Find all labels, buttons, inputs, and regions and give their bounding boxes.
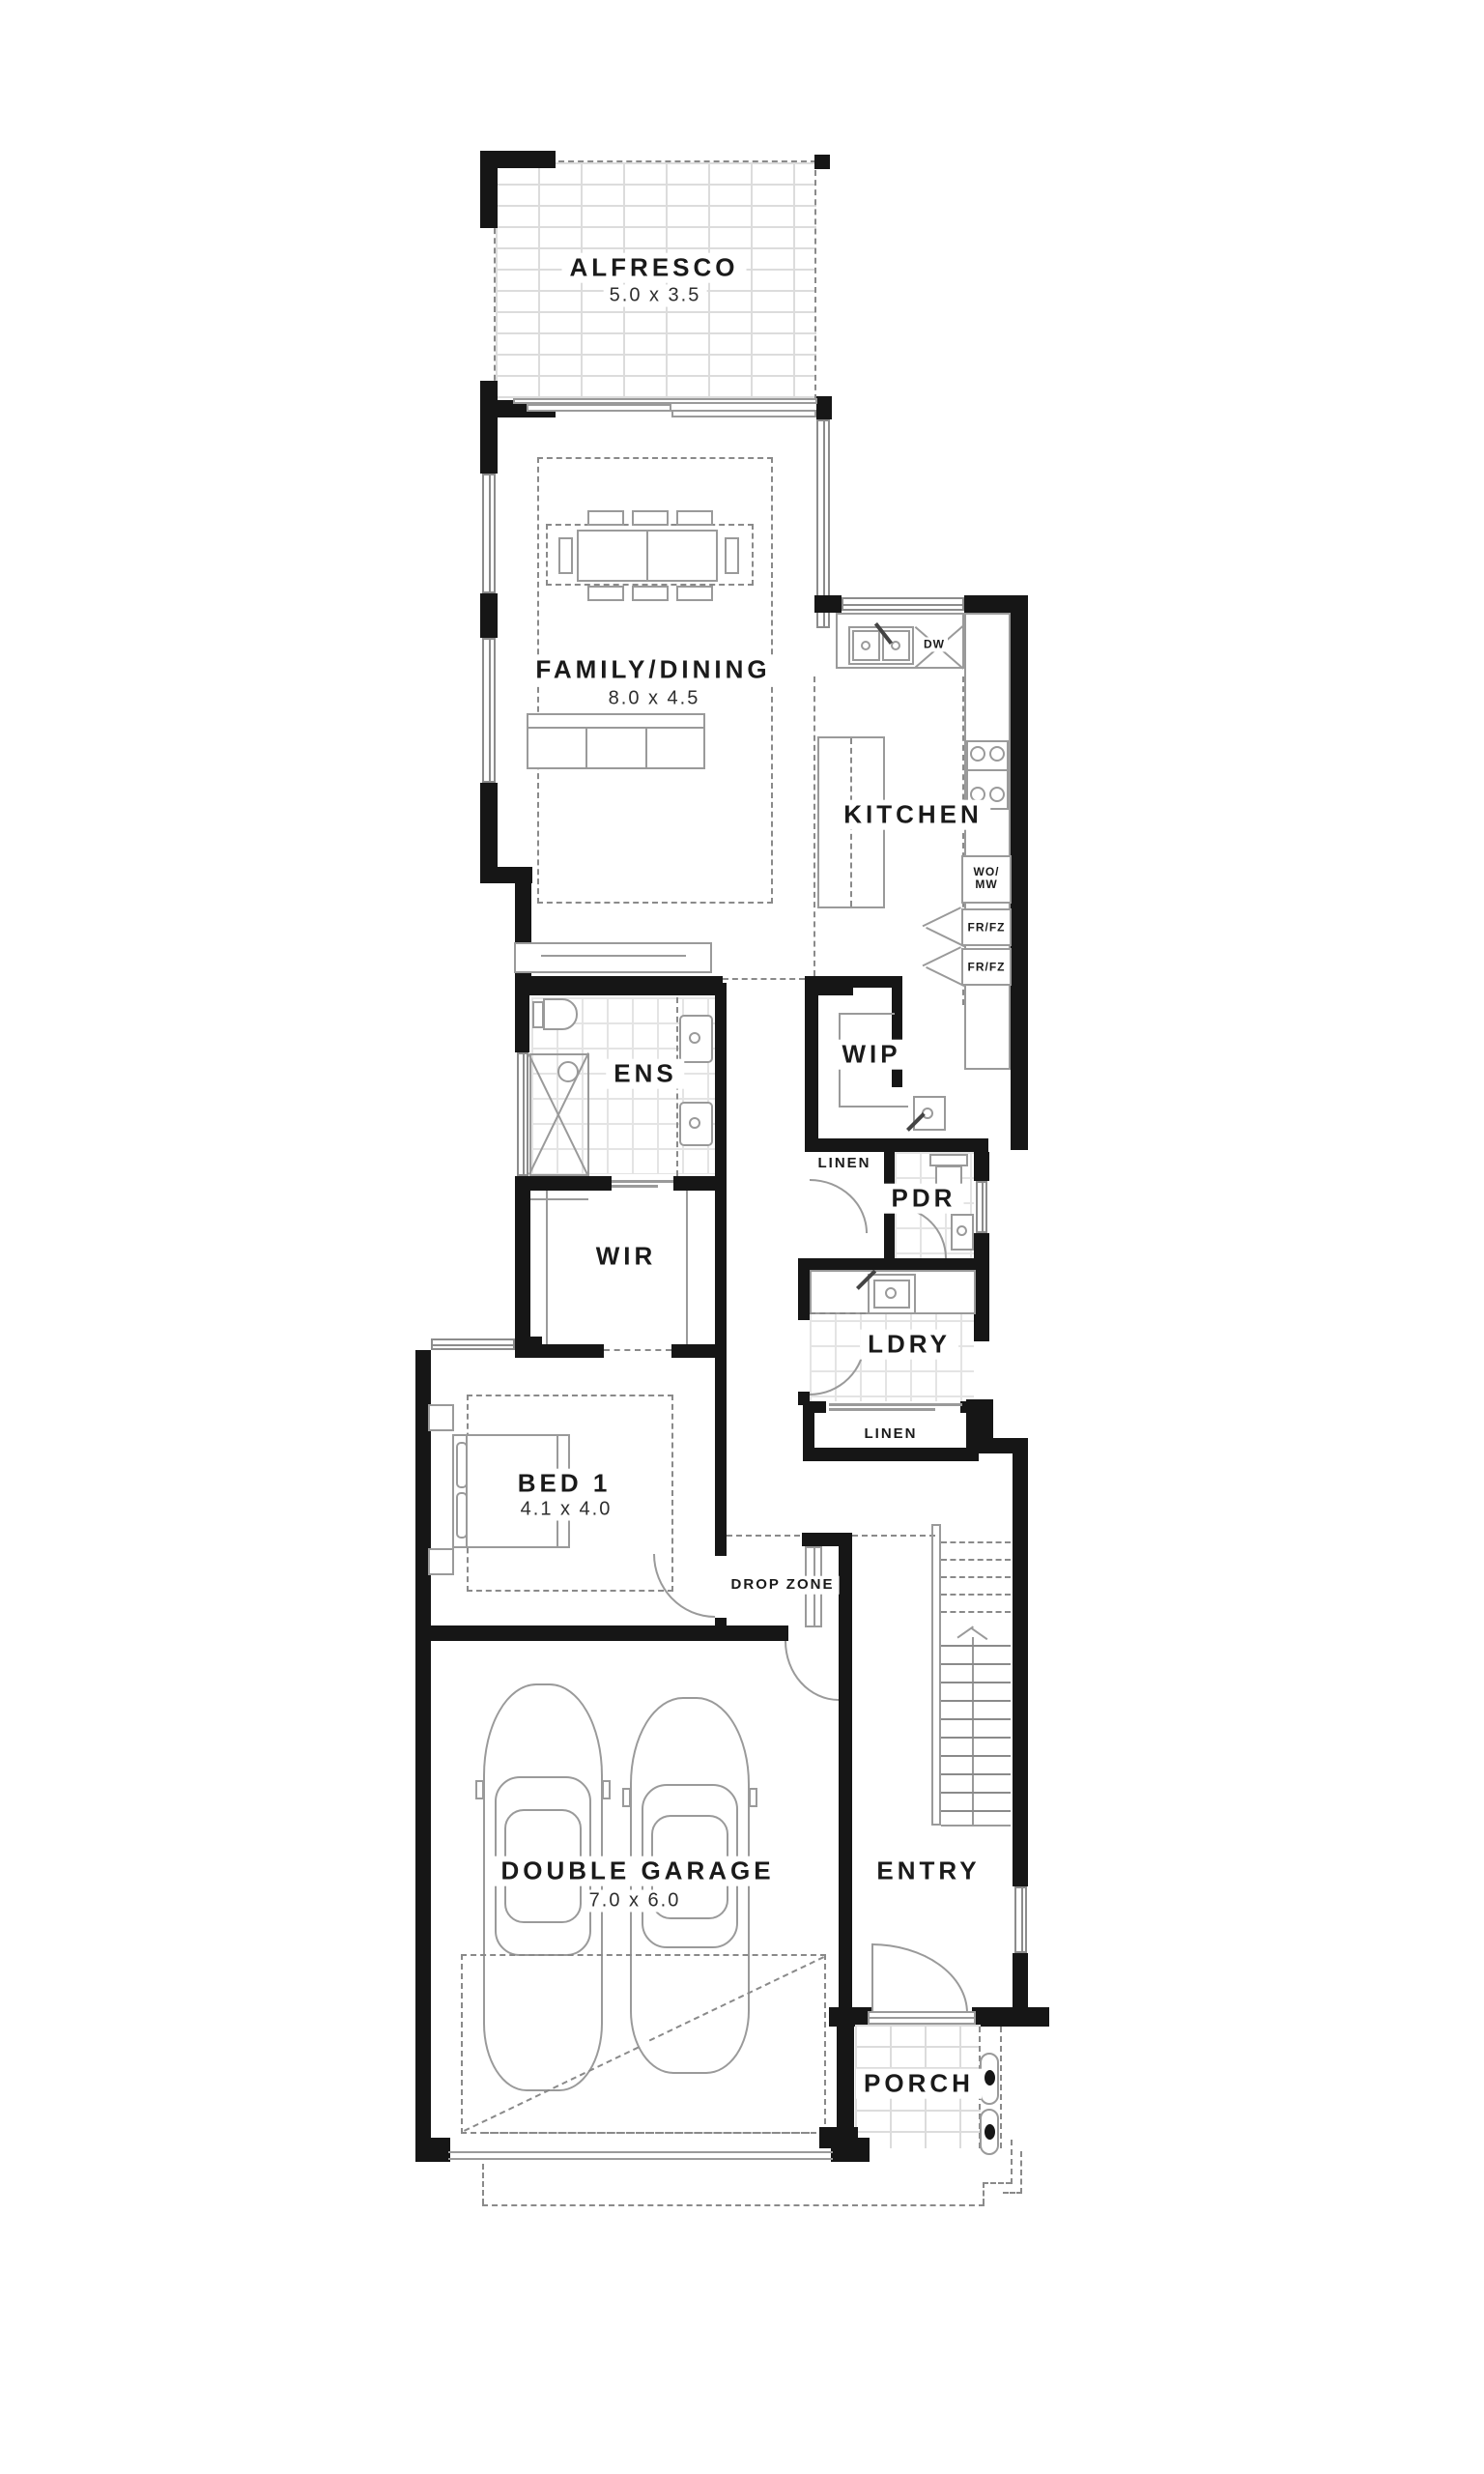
room-size-garage: 7.0 x 6.0	[584, 1890, 687, 1913]
window	[517, 1052, 528, 1176]
sliding-door-panel	[527, 404, 671, 412]
fridge-door-swing	[926, 927, 964, 947]
room-label-wip: WIP	[834, 1040, 908, 1070]
dining-chair	[558, 537, 573, 574]
stair-edge	[941, 1825, 1011, 1827]
robe-shelf	[686, 1191, 688, 1344]
room-label-porch: PORCH	[856, 2069, 982, 2099]
wall-segment	[415, 1350, 431, 2138]
hall-opening	[723, 978, 805, 980]
room-label-kitchen: KITCHEN	[836, 800, 990, 830]
window	[842, 597, 964, 611]
window	[431, 1338, 515, 1350]
sink-drain	[861, 641, 870, 650]
window	[976, 1181, 987, 1233]
driveway-outline	[983, 2182, 1012, 2184]
pantry-shelf	[839, 1013, 895, 1015]
window	[482, 474, 496, 593]
wall-segment	[829, 2007, 871, 2027]
wall-segment	[964, 595, 1028, 613]
wall-segment	[480, 151, 498, 228]
alfresco-boundary	[814, 170, 816, 400]
toilet-bowl	[543, 998, 578, 1030]
wall-segment	[798, 1258, 982, 1270]
room-label-family-dining: FAMILY/DINING	[528, 655, 778, 685]
wall-segment	[892, 976, 902, 1087]
bedside-table	[428, 1404, 454, 1431]
pillow	[456, 1442, 468, 1488]
car-mirror	[475, 1780, 484, 1799]
roof-outline	[1011, 2140, 1013, 2184]
cavity-slider	[612, 1185, 658, 1188]
window	[1014, 1886, 1027, 1953]
sofa	[527, 713, 705, 769]
wall-segment	[839, 1625, 852, 1641]
cavity-slider	[612, 1180, 673, 1183]
room-label-linen-upper: LINEN	[813, 1155, 876, 1173]
sliding-door-panel	[671, 410, 816, 417]
sofa-seat-line	[585, 727, 587, 769]
appliance-label-wo-mw: WO/ MW	[971, 865, 1003, 892]
bench-edge	[810, 1312, 866, 1314]
wall-segment	[803, 1448, 979, 1461]
stair-tread-dashed	[941, 1611, 1011, 1613]
dining-chair	[725, 537, 739, 574]
wall-segment	[480, 867, 532, 883]
room-label-bed1: BED 1	[510, 1469, 619, 1499]
porch-pillar-core	[985, 2124, 995, 2140]
stair-rail	[931, 1524, 941, 1826]
dining-chair	[676, 586, 713, 601]
wall-segment	[715, 1189, 727, 1358]
dining-chair	[587, 510, 624, 526]
garage-door-panel	[448, 2151, 833, 2153]
sofa-seat-line	[645, 727, 647, 769]
wall-segment	[415, 2138, 450, 2162]
room-label-drop-zone: DROP ZONE	[727, 1576, 840, 1595]
wall-segment	[1013, 1438, 1028, 1886]
room-size-alfresco: 5.0 x 3.5	[604, 285, 707, 307]
appliance-label-frfz: FR/FZ	[965, 920, 1009, 935]
threshold-line	[868, 2017, 976, 2019]
wall-segment	[805, 1138, 915, 1152]
wall-segment	[839, 1542, 852, 2012]
post	[814, 155, 830, 169]
garage-door-panel	[448, 2158, 833, 2160]
stair-tread-dashed	[941, 1541, 1011, 1543]
room-label-pdr: PDR	[884, 1184, 964, 1214]
sofa-back-line	[527, 727, 705, 729]
wall-segment	[819, 2127, 858, 2148]
porch-pillar-core	[985, 2070, 995, 2086]
bedside-table	[428, 1548, 454, 1575]
room-size-family-dining: 8.0 x 4.5	[603, 688, 706, 710]
roof-outline	[1003, 2192, 1022, 2194]
door-swing	[653, 1554, 715, 1618]
wall-segment	[969, 1438, 1028, 1453]
alfresco-boundary	[494, 218, 496, 400]
wall-segment	[671, 1344, 727, 1358]
wall-segment	[515, 1337, 542, 1350]
linen-slider	[829, 1408, 935, 1411]
dining-chair	[632, 510, 669, 526]
wall-segment	[805, 976, 901, 988]
room-label-garage: DOUBLE GARAGE	[493, 1856, 782, 1886]
stair-tread-dashed	[941, 1559, 1011, 1561]
burner	[989, 787, 1005, 802]
door-swing	[785, 1641, 839, 1701]
driveway-outline	[482, 2164, 484, 2204]
burner	[989, 746, 1005, 762]
stair-tread-dashed	[941, 1594, 1011, 1596]
alfresco-boundary	[549, 160, 816, 162]
wall-segment	[515, 1189, 530, 1358]
cooktop-line	[966, 769, 1009, 771]
robe-shelf	[546, 1191, 548, 1344]
dining-chair	[587, 586, 624, 601]
wall-segment	[527, 976, 723, 995]
room-label-alfresco: ALFRESCO	[562, 253, 747, 283]
wall-segment	[415, 1625, 788, 1641]
room-label-entry: ENTRY	[869, 1856, 987, 1886]
basin-drain	[956, 1225, 967, 1236]
porch-edge	[1000, 2027, 1002, 2148]
fridge-door-swing	[923, 946, 961, 966]
wall-segment	[1011, 613, 1028, 1150]
fridge-door-swing	[926, 966, 964, 987]
burner	[970, 746, 985, 762]
appliance-label-frfz: FR/FZ	[965, 960, 1009, 974]
dining-chair	[632, 586, 669, 601]
car-mirror	[622, 1788, 631, 1807]
wall-segment	[915, 1138, 988, 1152]
wall-segment	[972, 2007, 1049, 2027]
garage-door-track	[483, 2132, 810, 2134]
front-door-swing	[871, 1943, 968, 2013]
robe-shelf	[530, 1198, 588, 1200]
appliance-label-dishwasher: DW	[921, 637, 948, 651]
basin-drain	[689, 1032, 700, 1044]
wall-segment	[480, 417, 498, 474]
wall-segment	[805, 976, 818, 1150]
roof-outline	[1020, 2151, 1022, 2194]
wall-segment	[798, 1258, 810, 1320]
stair-tread-dashed	[941, 1576, 1011, 1578]
wall-segment	[816, 396, 832, 419]
tv-unit	[514, 942, 712, 973]
front-door-leaf	[871, 1943, 873, 2013]
wall-segment	[515, 983, 529, 1052]
wall-segment	[974, 1152, 989, 1181]
window	[482, 638, 496, 783]
basin-drain	[689, 1117, 700, 1129]
floor-plan: ALFRESCO 5.0 x 3.5 FAMILY/DINING 8.0 x 4…	[0, 0, 1484, 2474]
wall-segment	[715, 1358, 727, 1556]
pantry-shelf	[839, 1106, 908, 1108]
kitchen-boundary	[813, 676, 815, 976]
kitchen-bench	[964, 613, 1011, 1070]
tv-unit-line	[541, 955, 686, 957]
wall-segment	[814, 595, 842, 613]
wall-segment	[974, 1233, 989, 1341]
wall-segment	[480, 593, 498, 638]
linen-slider	[829, 1403, 962, 1406]
room-size-bed1: 4.1 x 4.0	[515, 1499, 618, 1521]
room-label-ldry: LDRY	[860, 1330, 958, 1360]
driveway-outline	[983, 2182, 985, 2204]
dining-table-split	[646, 530, 648, 582]
room-label-wir: WIR	[588, 1242, 665, 1272]
door-swing	[810, 1179, 868, 1233]
driveway-outline	[482, 2204, 985, 2206]
sink-drain	[885, 1287, 897, 1299]
wall-segment	[837, 2025, 854, 2131]
room-label-linen-lower: LINEN	[860, 1425, 923, 1444]
dining-chair	[676, 510, 713, 526]
room-label-ens: ENS	[606, 1059, 684, 1089]
shower-drain	[557, 1061, 579, 1082]
fridge-door-swing	[923, 906, 961, 927]
stair-treads	[941, 1645, 1011, 1827]
wall-segment	[715, 983, 727, 1191]
car-mirror	[602, 1780, 611, 1799]
wir-opening	[604, 1349, 671, 1351]
pillow	[456, 1492, 468, 1539]
car-mirror	[749, 1788, 757, 1807]
